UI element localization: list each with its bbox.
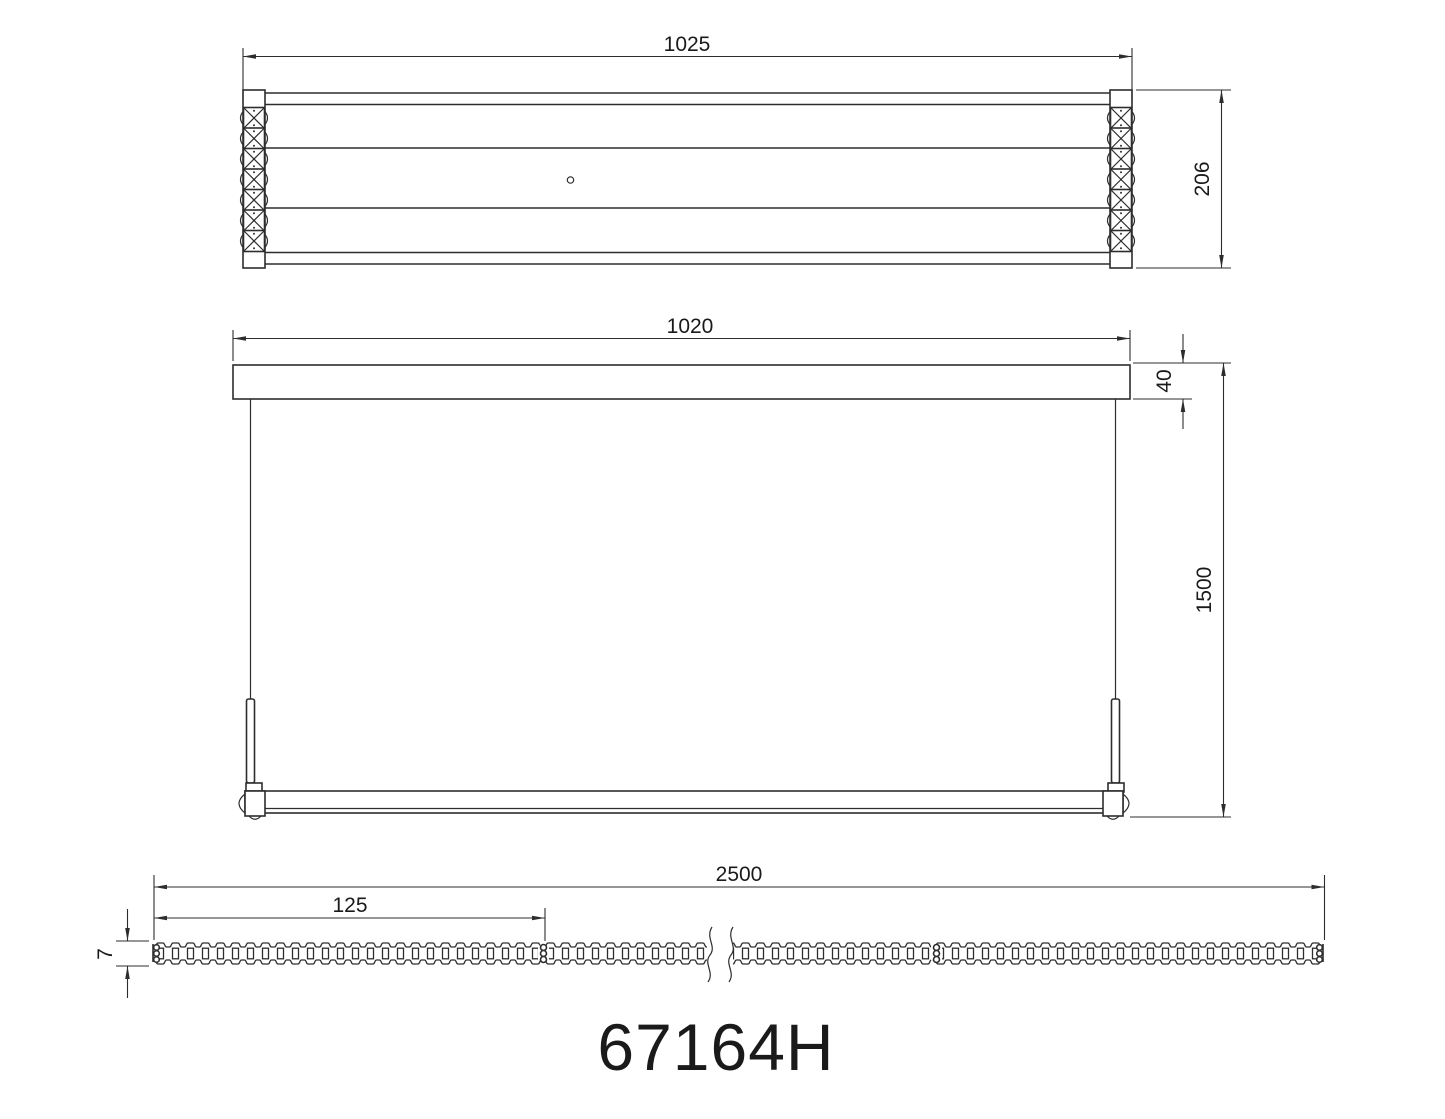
arrowhead xyxy=(154,916,167,921)
arrowhead xyxy=(1117,336,1130,341)
arrowhead xyxy=(1221,804,1226,817)
arrowhead xyxy=(1181,399,1186,412)
dim-label-front-width: 1020 xyxy=(667,315,714,338)
dim-cut-segment: 125 xyxy=(154,894,545,941)
dim-drop-height: 1500 xyxy=(1130,363,1231,817)
crystal-bead xyxy=(241,210,268,231)
crystal-bead xyxy=(241,108,268,129)
arrowhead xyxy=(154,885,167,890)
break-symbol xyxy=(707,927,733,982)
end-cap-left xyxy=(239,794,245,813)
arrowhead xyxy=(1181,350,1186,363)
dim-label-cut-segment: 125 xyxy=(332,894,367,917)
crystal-bead xyxy=(1108,190,1135,211)
arrowhead xyxy=(125,928,130,941)
crystal-bead xyxy=(241,169,268,190)
crystal-bead xyxy=(1108,210,1135,231)
crystal-bead xyxy=(241,231,268,252)
end-block-left xyxy=(245,791,265,816)
solder-pads-left-end xyxy=(154,945,160,963)
arrowhead xyxy=(1221,363,1226,376)
arrowhead xyxy=(1219,90,1224,103)
crystal-bead xyxy=(1108,128,1135,149)
arrowhead xyxy=(243,54,256,59)
solder-pads-cut-point-2 xyxy=(931,945,942,963)
arrowhead xyxy=(125,966,130,979)
dim-label-canopy-height: 40 xyxy=(1153,369,1176,392)
suspension-rod-right xyxy=(1112,699,1120,783)
end-cap-right xyxy=(1123,794,1129,813)
crystal-stack-left xyxy=(241,108,268,252)
dim-label-top-width: 1025 xyxy=(664,33,711,56)
led-strip-view: 2500 125 7 xyxy=(94,863,1325,998)
front-view: 1020 40 1500 xyxy=(233,315,1231,819)
dim-top-height: 206 xyxy=(1136,90,1231,268)
dim-canopy-height: 40 xyxy=(1133,334,1231,429)
dim-label-top-height: 206 xyxy=(1191,161,1214,196)
dim-top-width: 1025 xyxy=(243,33,1132,102)
dim-strip-width: 7 xyxy=(94,909,149,998)
end-block-right xyxy=(1103,791,1123,816)
top-view: 1025 206 xyxy=(241,33,1232,268)
solder-pads-right-end xyxy=(1317,945,1323,963)
solder-pads-cut-point-1 xyxy=(538,945,549,963)
mounting-hole xyxy=(567,177,573,183)
crystal-bead xyxy=(241,190,268,211)
model-number-title: 67164H xyxy=(597,1010,834,1084)
arrowhead xyxy=(1119,54,1132,59)
crystal-bead xyxy=(1108,149,1135,170)
light-bar xyxy=(245,791,1123,813)
arrowhead xyxy=(233,336,246,341)
drawing-page: 1025 206 xyxy=(0,0,1445,1119)
dim-front-width: 1020 xyxy=(233,315,1130,361)
dim-label-drop-height: 1500 xyxy=(1193,567,1216,614)
crystal-bead xyxy=(241,149,268,170)
technical-drawing-canvas: 1025 206 xyxy=(0,0,1445,1119)
crystal-bead xyxy=(1108,231,1135,252)
led-strip-body xyxy=(153,941,1323,966)
dim-strip-length: 2500 xyxy=(154,863,1325,940)
crystal-stack-right xyxy=(1108,108,1135,252)
arrowhead xyxy=(1219,255,1224,268)
suspension-rod-left xyxy=(247,699,255,783)
canopy xyxy=(233,365,1130,399)
dim-label-strip-width: 7 xyxy=(94,948,117,960)
arrowhead xyxy=(1312,885,1325,890)
crystal-bead xyxy=(1108,169,1135,190)
dim-label-strip-length: 2500 xyxy=(716,863,763,886)
crystal-bead xyxy=(241,128,268,149)
crystal-bead xyxy=(1108,108,1135,129)
arrowhead xyxy=(532,916,545,921)
